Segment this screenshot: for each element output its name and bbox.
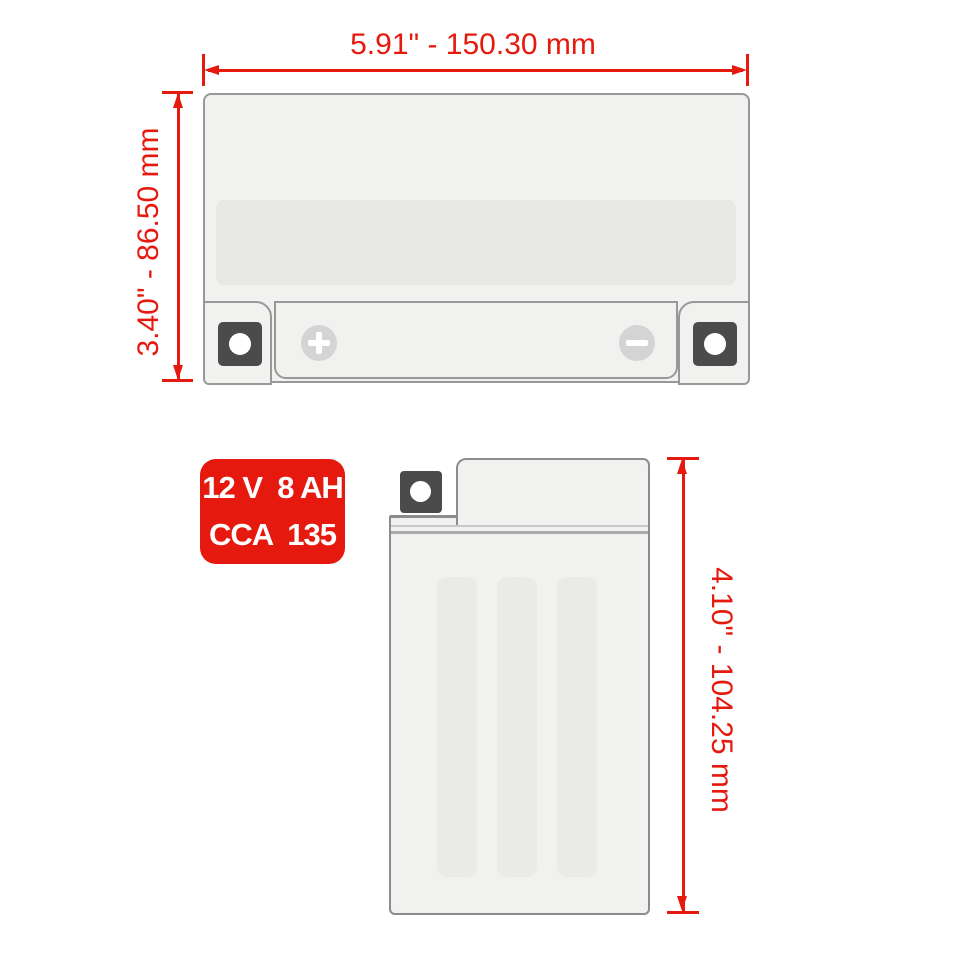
battery-side-step-edge xyxy=(389,515,458,518)
battery-lid-seam-line xyxy=(391,531,648,534)
terminal-bolt-hole xyxy=(704,333,726,355)
spec-badge: 12 V 8 AH CCA 135 xyxy=(200,459,345,564)
terminal-bolt-hole xyxy=(229,333,251,355)
battery-top-view xyxy=(203,93,750,383)
spec-badge-cca: CCA 135 xyxy=(209,513,336,557)
side-height-bottom-extension-tick xyxy=(667,911,699,914)
positive-terminal-bolt xyxy=(218,322,262,366)
battery-case-stripe xyxy=(497,577,537,877)
negative-terminal-bolt xyxy=(693,322,737,366)
minus-icon xyxy=(619,325,655,361)
arrow-left-icon xyxy=(204,65,219,75)
plus-icon xyxy=(301,325,337,361)
top-view-width-dimension-label: 5.91" - 150.30 mm xyxy=(273,26,673,64)
battery-side-view xyxy=(389,458,650,915)
arrow-up-icon xyxy=(173,93,183,108)
battery-case-stripe xyxy=(557,577,597,877)
battery-lid-seam-line xyxy=(391,525,648,527)
top-view-height-dimension-label: 3.40" - 86.50 mm xyxy=(130,82,168,402)
width-dimension-line xyxy=(208,69,743,72)
arrow-right-icon xyxy=(732,65,747,75)
battery-case-stripe xyxy=(437,577,477,877)
side-height-dimension-line xyxy=(682,460,685,911)
arrow-down-icon xyxy=(677,896,687,911)
side-terminal-bolt xyxy=(400,471,442,513)
side-view-height-dimension-label: 4.10" - 104.25 mm xyxy=(702,510,740,870)
battery-top-recess-panel xyxy=(216,200,736,285)
battery-side-raised-top xyxy=(456,458,650,527)
height-dimension-line xyxy=(177,94,180,380)
arrow-up-icon xyxy=(677,459,687,474)
spec-badge-voltage-capacity: 12 V 8 AH xyxy=(202,466,342,510)
battery-dimension-diagram: 5.91" - 150.30 mm 3.40" - 86.50 mm 12 V … xyxy=(0,0,960,960)
terminal-bolt-hole xyxy=(410,481,431,502)
arrow-down-icon xyxy=(173,365,183,380)
